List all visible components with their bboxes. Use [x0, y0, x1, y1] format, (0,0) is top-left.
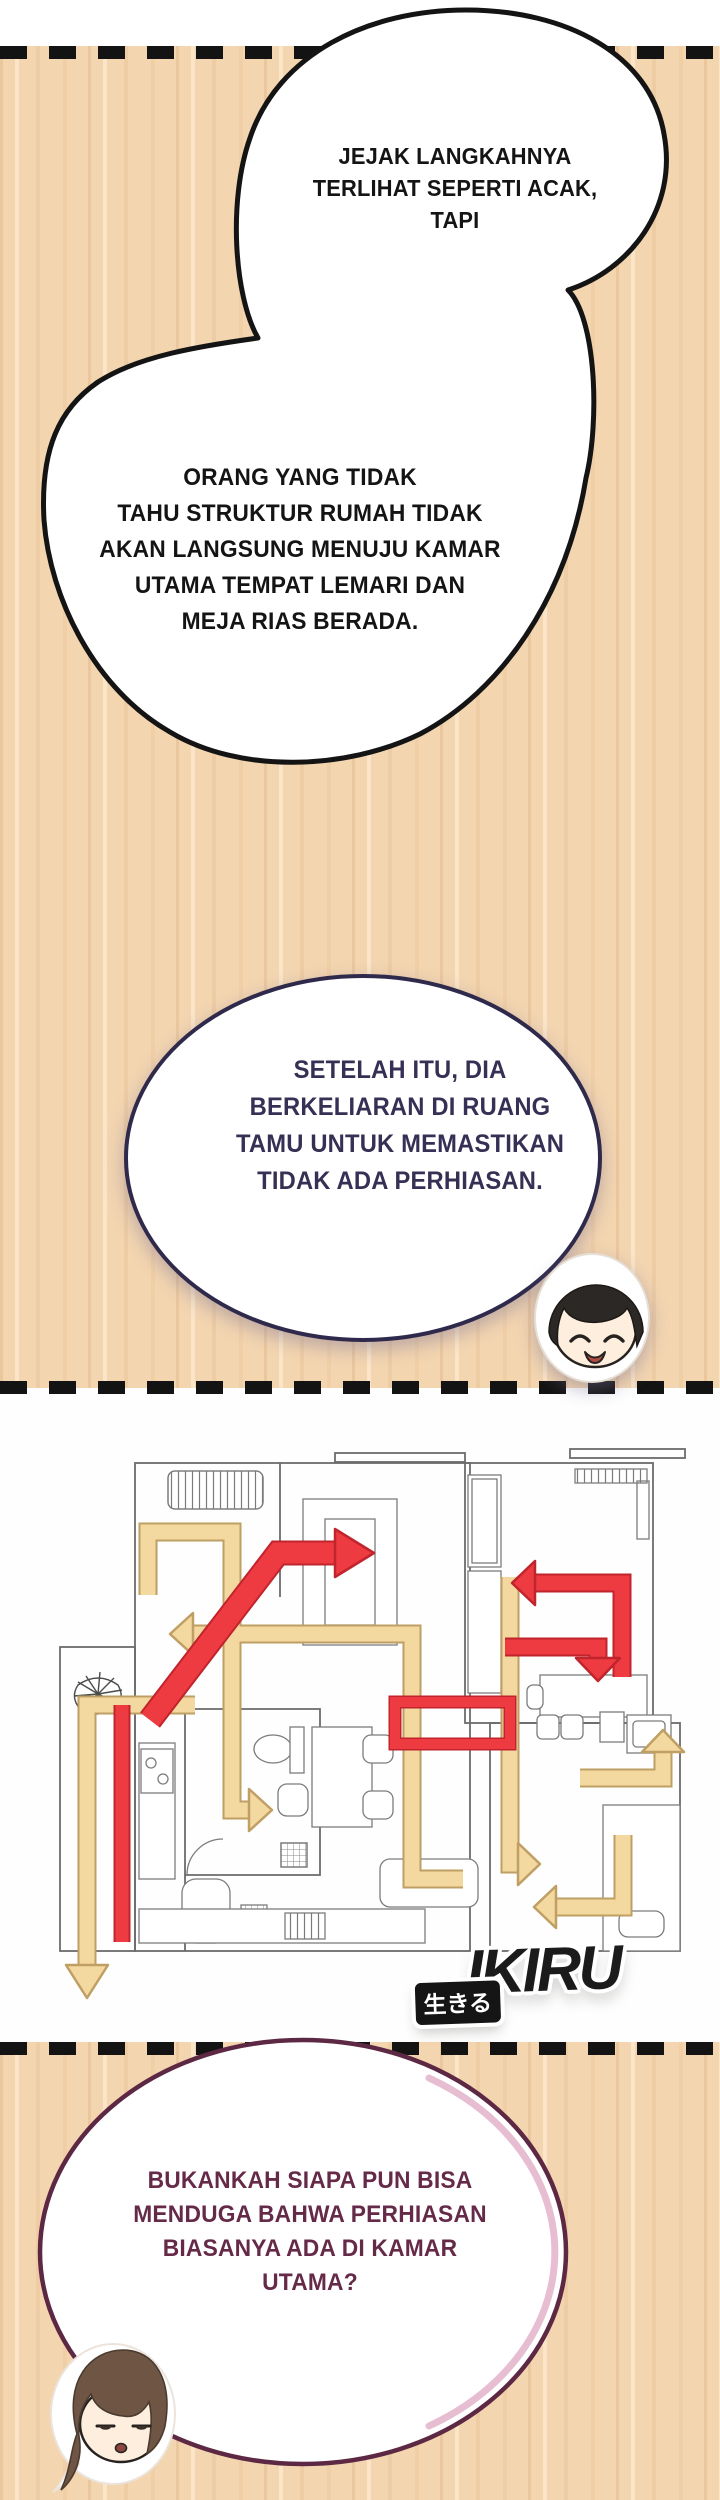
narration-bubble-main	[43, 10, 666, 762]
deadpan-chibi-face-icon	[45, 2336, 185, 2500]
ikiru-logo-badge: 生きる	[415, 1980, 501, 2025]
narration-text-second: SETELAH ITU, DIA BERKELIARAN DI RUANG TA…	[153, 1052, 647, 1200]
narration-text-main: ORANG YANG TIDAK TAHU STRUKTUR RUMAH TID…	[53, 460, 547, 640]
happy-chibi-face-icon	[533, 1248, 651, 1384]
speech-text-bottom: BUKANKAH SIAPA PUN BISA MENDUGA BAHWA PE…	[63, 2164, 557, 2300]
narration-text-top: JEJAK LANGKAHNYA TERLIHAT SEPERTI ACAK, …	[265, 140, 645, 236]
ikiru-logo: IKIRU 生きる	[413, 1929, 717, 2049]
floor-plan-map	[35, 1447, 695, 2005]
